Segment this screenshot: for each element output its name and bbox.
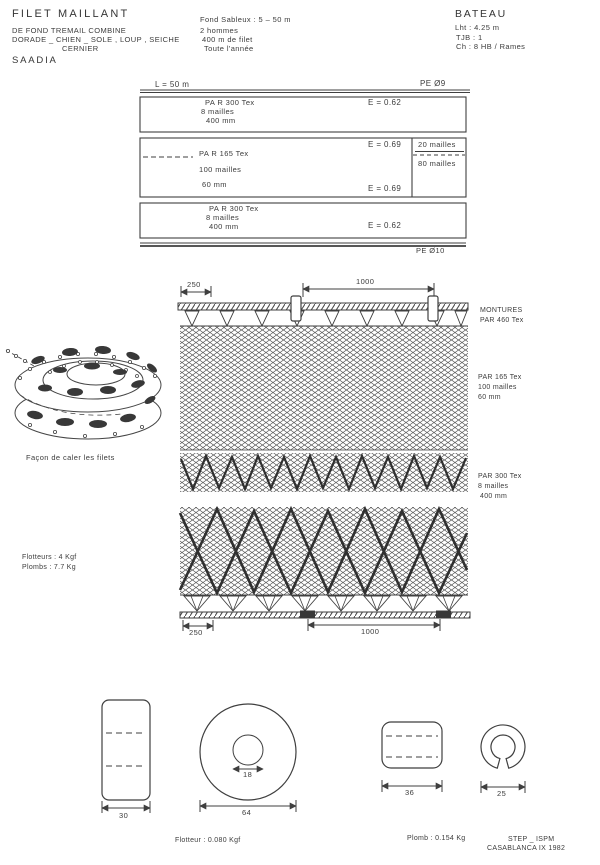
bottom-dimension-lines — [183, 619, 440, 631]
montures-label: MONTURES — [480, 307, 522, 315]
lead-diameter-dim: 25 — [497, 790, 506, 799]
port-name: SAADIA — [12, 56, 58, 67]
plan-bottom-rope-label: PE Ø10 — [416, 247, 445, 256]
dim-1000-bottom: 1000 — [361, 628, 379, 637]
leadline-hangings — [184, 596, 462, 611]
scanned-gear-sheet: FILET MAILLANT DE FOND TREMAIL COMBINE D… — [0, 0, 600, 865]
float-side-view — [102, 700, 150, 800]
panel3-hanging-ratio: E = 0.62 — [368, 221, 401, 230]
low-panel-twine: PAR 300 Tex — [478, 473, 522, 481]
plan-top-rope-label: PE Ø9 — [420, 79, 446, 88]
leadline-rope — [180, 612, 470, 618]
floatline-hangings — [185, 311, 467, 326]
lead-side-view — [382, 722, 442, 768]
boat-tonnage: TJB : 1 — [456, 34, 483, 43]
component-drawings — [102, 700, 525, 813]
net-coil-drawing — [6, 345, 161, 439]
panel1-mesh-size: 400 mm — [206, 117, 236, 126]
lead-caption: Plomb : 0.154 Kg — [407, 835, 466, 843]
low-panel-size: 400 mm — [480, 493, 507, 501]
plan-length-label: L = 50 m — [155, 80, 189, 89]
lead-length-dim: 36 — [405, 789, 414, 798]
mid-panel-size: 60 mm — [478, 394, 501, 402]
boat-length: Lht : 4.25 m — [455, 24, 499, 33]
boat-title: BATEAU — [455, 8, 507, 20]
panel3-mesh-size: 400 mm — [209, 223, 239, 232]
boat-power: Ch : 8 HB / Rames — [456, 43, 525, 52]
montures-twine: PAR 460 Tex — [480, 317, 524, 325]
mid-panel-meshes: 100 mailles — [478, 384, 517, 392]
float-caption: Flotteur : 0.080 Kgf — [175, 837, 241, 845]
float-width-dim: 30 — [119, 812, 128, 821]
panel1-hanging-ratio: E = 0.62 — [368, 98, 401, 107]
float-hole-dim: 18 — [243, 771, 252, 780]
low-panel-meshes: 8 mailles — [478, 483, 508, 491]
technical-drawing-layer — [0, 0, 600, 865]
floatline-rope — [178, 303, 468, 310]
mid-panel-twine: PAR 165 Tex — [478, 374, 522, 382]
footer-organization: STEP _ ISPM — [508, 836, 554, 844]
float-diameter-dim: 64 — [242, 809, 251, 818]
condition-seabed: Fond Sableux : 5 – 50 m — [200, 16, 291, 25]
lead-weight-on-rope — [436, 611, 451, 619]
net-detail-diagram — [178, 283, 470, 631]
dim-1000-top: 1000 — [356, 278, 374, 287]
dim-250-top: 250 — [187, 281, 201, 290]
dim-250-bottom: 250 — [189, 629, 203, 638]
panel2-meshes: 100 mailles — [199, 166, 241, 175]
floats-total: Flotteurs : 4 Kgf — [22, 554, 77, 562]
panel2-material: PA R 165 Tex — [199, 150, 249, 159]
footer-place-date: CASABLANCA IX 1982 — [487, 845, 565, 853]
top-dimension-lines — [181, 283, 434, 297]
mesh-band-small — [180, 326, 468, 450]
lead-end-view — [481, 725, 525, 768]
condition-season: Toute l'année — [204, 45, 254, 54]
panel2-mesh-size: 60 mm — [202, 181, 227, 190]
panel2-sub-top: 20 mailles — [418, 141, 456, 150]
leads-total: Plombs : 7.7 Kg — [22, 564, 76, 572]
target-species-2: CERNIER — [62, 45, 99, 54]
float-hole — [233, 735, 263, 765]
panel2-hanging-ratio-bottom: E = 0.69 — [368, 184, 401, 193]
sheet-title: FILET MAILLANT — [12, 8, 129, 21]
lead-weight-on-rope — [300, 611, 315, 619]
float-on-rope — [428, 296, 438, 321]
float-on-rope — [291, 296, 301, 321]
float-front-view — [200, 704, 296, 800]
coil-caption: Façon de caler les filets — [26, 454, 115, 463]
panel2-sub-bottom: 80 mailles — [418, 160, 456, 169]
panel2-hanging-ratio-top: E = 0.69 — [368, 140, 401, 149]
